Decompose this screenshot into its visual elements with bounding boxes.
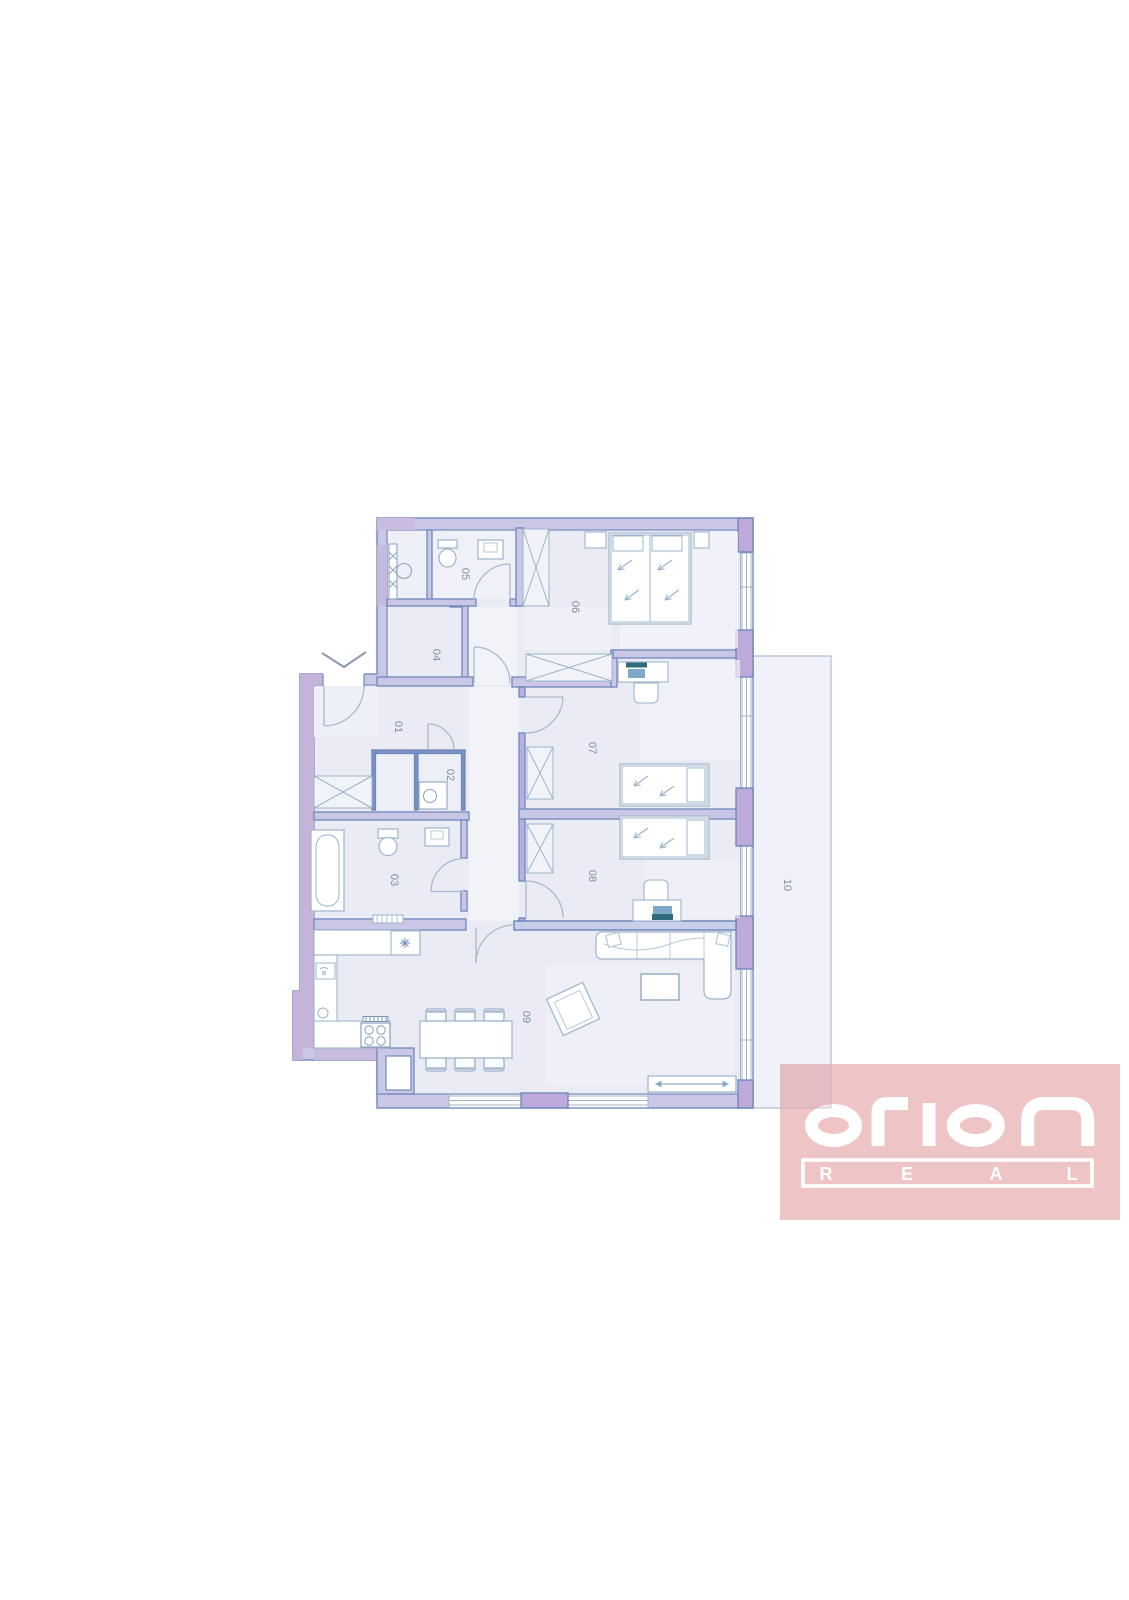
svg-text:02: 02 bbox=[444, 769, 456, 781]
svg-text:04: 04 bbox=[430, 649, 442, 661]
svg-text:09: 09 bbox=[520, 1011, 532, 1023]
svg-text:R: R bbox=[820, 1164, 833, 1184]
svg-text:01: 01 bbox=[392, 721, 404, 733]
svg-text:08: 08 bbox=[586, 870, 598, 882]
svg-text:E: E bbox=[901, 1164, 913, 1184]
svg-text:10: 10 bbox=[781, 879, 793, 891]
svg-text:07: 07 bbox=[586, 742, 598, 754]
svg-text:L: L bbox=[1067, 1164, 1078, 1184]
svg-text:05: 05 bbox=[459, 568, 471, 580]
svg-text:03: 03 bbox=[388, 874, 400, 886]
svg-text:06: 06 bbox=[569, 601, 581, 613]
svg-text:A: A bbox=[990, 1164, 1003, 1184]
